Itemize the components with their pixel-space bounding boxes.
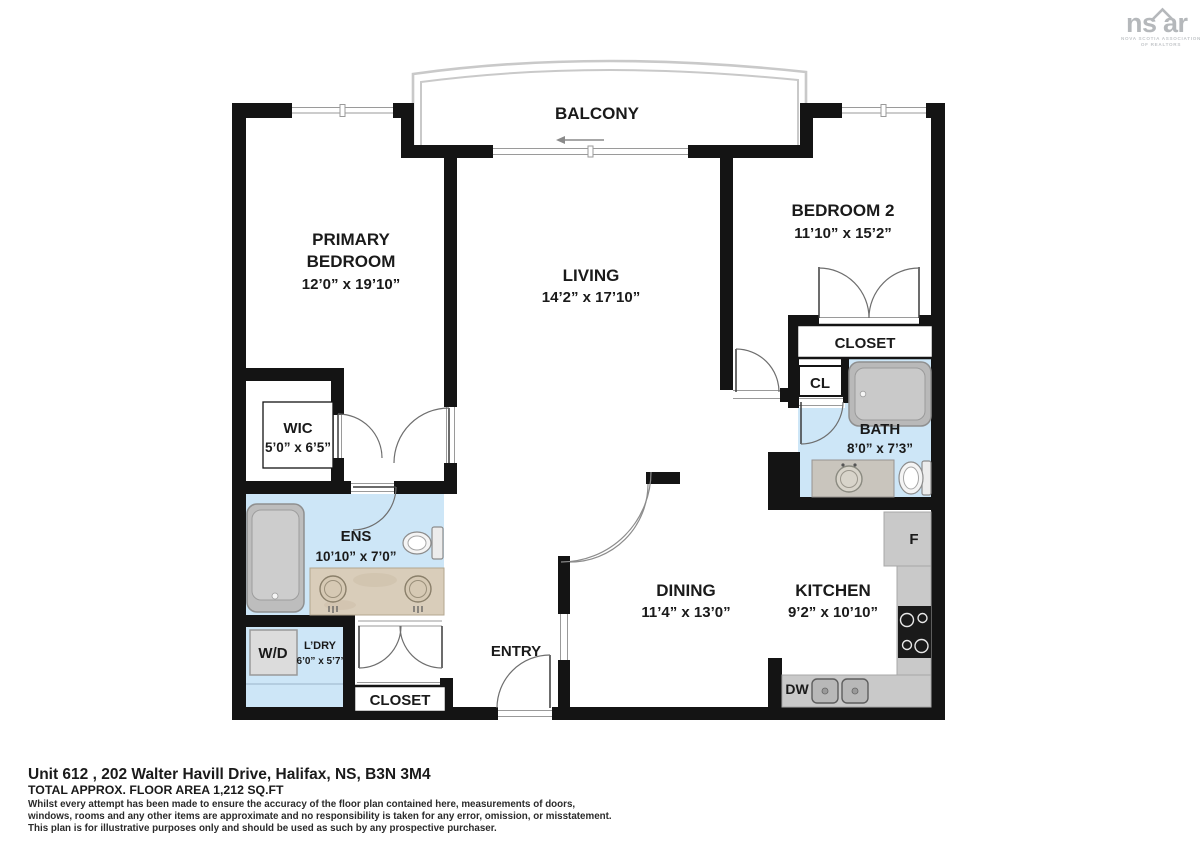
- logo-text-ns: ns: [1126, 8, 1157, 38]
- ensuite-label: ENS: [341, 528, 372, 545]
- ensuite-bathtub: [247, 504, 304, 612]
- bath-bathtub: [849, 362, 931, 426]
- wall-segment: [558, 556, 570, 616]
- pocket-opening-dining: [558, 614, 570, 660]
- primary-bedroom-label-1: PRIMARY: [312, 230, 390, 249]
- entry-label: ENTRY: [491, 643, 541, 660]
- bath-sink: [836, 466, 862, 492]
- bath-dims: 8’0” x 7’3”: [847, 441, 913, 456]
- door-primary-bedroom: [394, 407, 457, 463]
- logo-text-ar: ar: [1163, 8, 1189, 38]
- primary-bedroom-dims: 12’0” x 19’10”: [302, 276, 400, 293]
- kitchen-label: KITCHEN: [795, 581, 871, 600]
- cl-label: CL: [810, 375, 830, 392]
- arch-outer-line: [561, 472, 651, 562]
- wall-left: [232, 103, 246, 720]
- door-entry-closet: [357, 621, 442, 692]
- ensuite-vanity: [310, 568, 444, 615]
- ensuite-sink-left: [320, 576, 346, 602]
- primary-bedroom-label-2: BEDROOM: [307, 252, 396, 271]
- footer-disclaimer-1: Whilst every attempt has been made to en…: [28, 799, 575, 810]
- footer-area: TOTAL APPROX. FLOOR AREA 1,212 SQ.FT: [28, 783, 284, 797]
- fridge-label: F: [909, 531, 918, 548]
- door-entry: [497, 655, 552, 720]
- dining-dims: 11’4” x 13’0”: [641, 604, 730, 621]
- entry-closet-label: CLOSET: [370, 692, 431, 709]
- wall-segment: [720, 157, 733, 390]
- arch-inner-line: [570, 484, 648, 562]
- wall-segment: [558, 660, 570, 707]
- dishwasher-label: DW: [785, 681, 809, 697]
- wall-right: [931, 103, 945, 720]
- wall-segment: [246, 481, 351, 494]
- wic-label: WIC: [283, 420, 312, 437]
- footer-disclaimer-3: This plan is for illustrative purposes o…: [28, 823, 497, 834]
- wall-segment: [401, 145, 493, 158]
- footer: Unit 612 , 202 Walter Havill Drive, Hali…: [27, 766, 612, 834]
- bedroom2-dims: 11’10” x 15’2”: [794, 225, 892, 242]
- living-dims: 14’2” x 17’10”: [542, 289, 640, 306]
- logo-subtitle-2: OF REALTORS: [1141, 42, 1181, 47]
- wall-segment: [770, 497, 931, 510]
- wall-segment: [688, 145, 813, 158]
- wall-segment: [768, 658, 782, 707]
- door-bedroom2-closet: [819, 267, 919, 327]
- wall-bottom: [552, 707, 945, 720]
- fridge-area: [884, 512, 931, 566]
- bath-toilet: [899, 461, 931, 495]
- wall-segment: [232, 103, 292, 118]
- washer-dryer: W/D: [250, 630, 297, 675]
- door-bedroom2-hall: [733, 349, 780, 402]
- ensuite-dims: 10’10” x 7’0”: [315, 549, 396, 564]
- dining-label: DINING: [656, 581, 716, 600]
- bath-label: BATH: [860, 421, 901, 438]
- living-label: LIVING: [563, 266, 620, 285]
- floorplan-svg: BALCONY: [0, 0, 1200, 848]
- door-wic: [331, 414, 382, 458]
- nsar-logo: ns ar NOVA SCOTIA ASSOCIATION OF REALTOR…: [1121, 8, 1200, 47]
- bedroom2-closet-label: CLOSET: [835, 335, 896, 352]
- wall-segment: [394, 481, 457, 494]
- window-bedroom2: [842, 103, 926, 118]
- kitchen-dims: 9’2” x 10’10”: [788, 604, 878, 621]
- footer-address: Unit 612 , 202 Walter Havill Drive, Hali…: [28, 766, 431, 783]
- laundry-dims: 6’0” x 5’7”: [297, 656, 346, 667]
- balcony-label: BALCONY: [555, 104, 640, 123]
- window-primary-bedroom: [292, 103, 393, 118]
- bath-vanity: [812, 460, 894, 497]
- wall-segment: [246, 368, 344, 381]
- wall-segment: [800, 103, 842, 118]
- logo-subtitle-1: NOVA SCOTIA ASSOCIATION: [1121, 36, 1200, 41]
- curved-arch-wall: [561, 472, 651, 562]
- stove: [898, 606, 931, 658]
- wall-segment: [246, 615, 355, 627]
- ensuite-sink-right: [405, 576, 431, 602]
- balcony: BALCONY: [413, 61, 806, 148]
- bedroom2-label: BEDROOM 2: [792, 201, 895, 220]
- footer-disclaimer-2: windows, rooms and any other items are a…: [27, 811, 612, 822]
- floorplan-page: BALCONY: [0, 0, 1200, 848]
- laundry-label: L’DRY: [304, 640, 337, 652]
- wall-segment: [444, 157, 457, 407]
- wic-dims: 5’0” x 6’5”: [265, 440, 331, 455]
- washer-dryer-label: W/D: [258, 645, 287, 662]
